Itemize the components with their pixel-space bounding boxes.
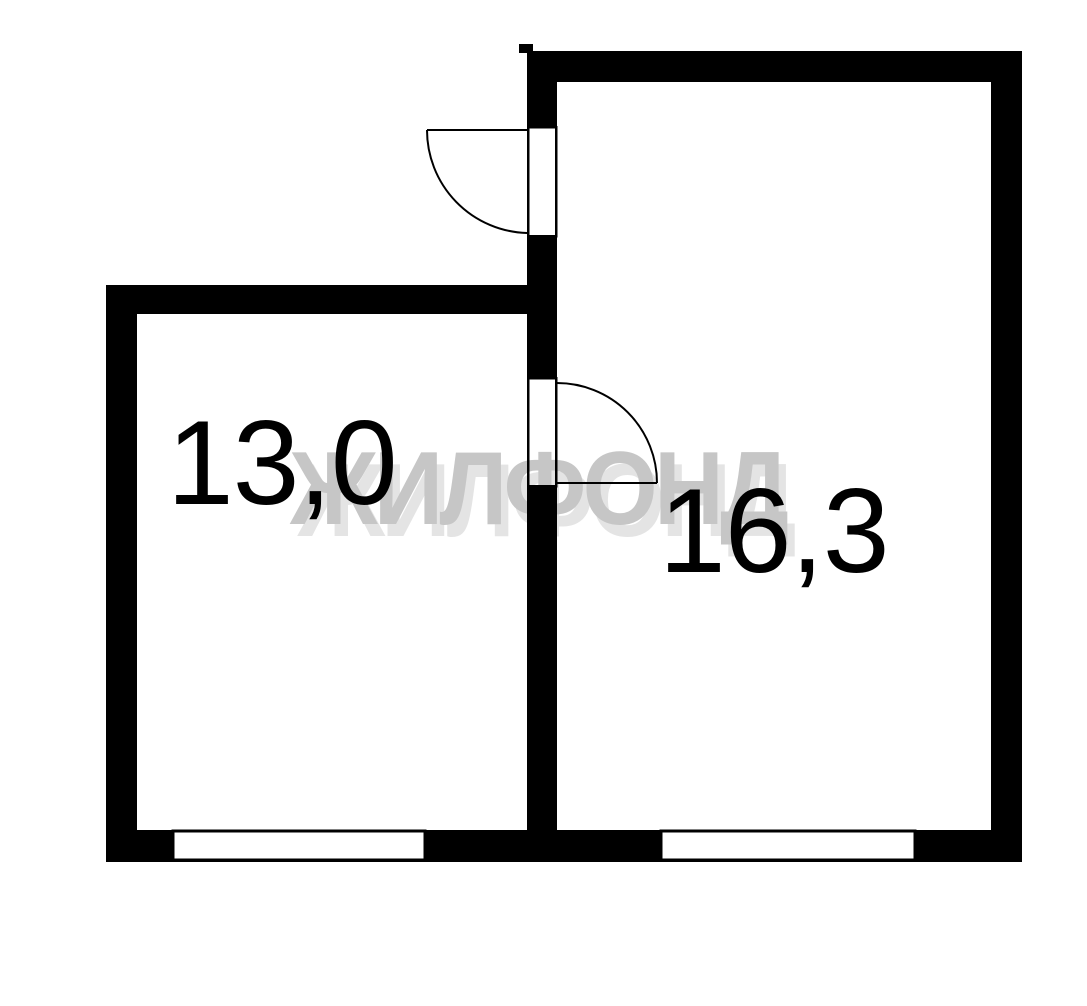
entrance-door-leaf-icon bbox=[528, 127, 556, 236]
wall-left-room-top bbox=[106, 285, 527, 314]
wall-divider-middle bbox=[527, 237, 557, 377]
entrance-door-swing-arc-icon bbox=[427, 130, 527, 233]
right-room-window-icon bbox=[661, 831, 915, 860]
wall-right-room-right bbox=[991, 51, 1022, 862]
left-room-window-icon bbox=[173, 831, 425, 860]
floorplan-canvas: 13,0 16,3 ЖИЛФОНД bbox=[0, 0, 1087, 1006]
wall-top-corner-nub bbox=[519, 44, 533, 53]
room-area-label-right: 16,3 bbox=[659, 471, 889, 591]
interior-door bbox=[528, 378, 657, 486]
wall-divider-upper bbox=[527, 51, 557, 126]
wall-right-room-top bbox=[527, 51, 1022, 82]
floorplan-svg bbox=[0, 0, 1087, 1006]
interior-door-leaf-icon bbox=[528, 378, 556, 486]
interior-door-swing-arc-icon bbox=[557, 383, 657, 483]
entrance-door bbox=[427, 127, 556, 236]
wall-divider-lower bbox=[527, 487, 557, 862]
wall-left-room-left bbox=[106, 285, 137, 862]
room-area-label-left: 13,0 bbox=[167, 403, 397, 523]
